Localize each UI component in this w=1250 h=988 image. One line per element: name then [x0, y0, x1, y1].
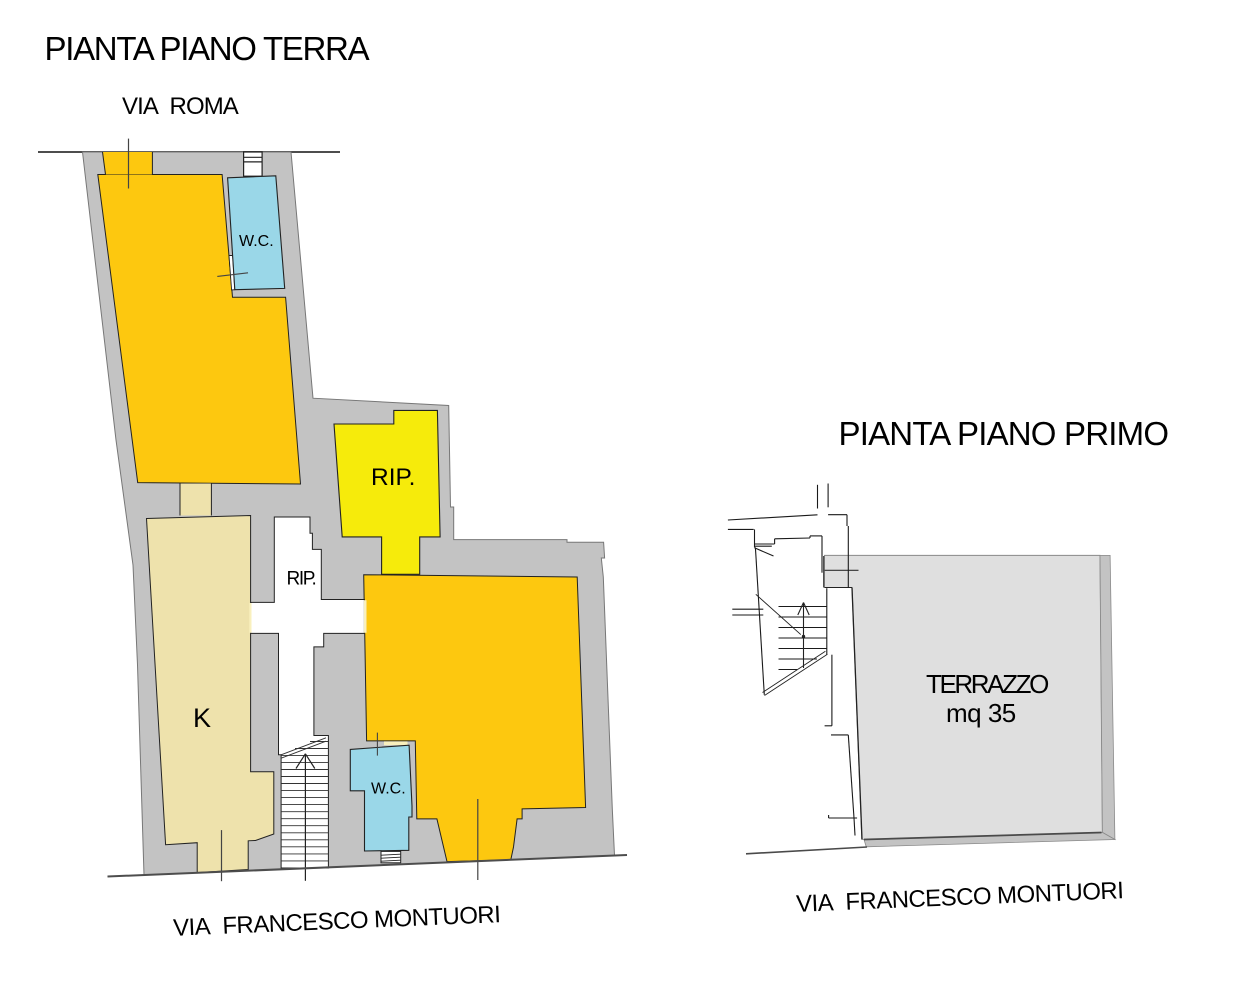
svg-text:TERRAZZO: TERRAZZO — [926, 669, 1048, 699]
svg-text:K: K — [193, 703, 211, 733]
svg-text:VIA FRANCESCO MONTUORI: VIA FRANCESCO MONTUORI — [796, 877, 1124, 918]
svg-text:W.C.: W.C. — [371, 781, 406, 798]
svg-text:VIA FRANCESCO MONTUORI: VIA FRANCESCO MONTUORI — [173, 901, 501, 942]
svg-text:PIANTA PIANO PRIMO: PIANTA PIANO PRIMO — [839, 415, 1169, 452]
svg-text:VIA ROMA: VIA ROMA — [122, 93, 239, 120]
svg-text:RIP.: RIP. — [371, 464, 416, 491]
svg-text:PIANTA PIANO TERRA: PIANTA PIANO TERRA — [45, 30, 370, 67]
svg-text:RIP.: RIP. — [287, 569, 316, 590]
svg-text:W.C.: W.C. — [239, 233, 274, 250]
svg-text:mq 35: mq 35 — [946, 698, 1016, 728]
